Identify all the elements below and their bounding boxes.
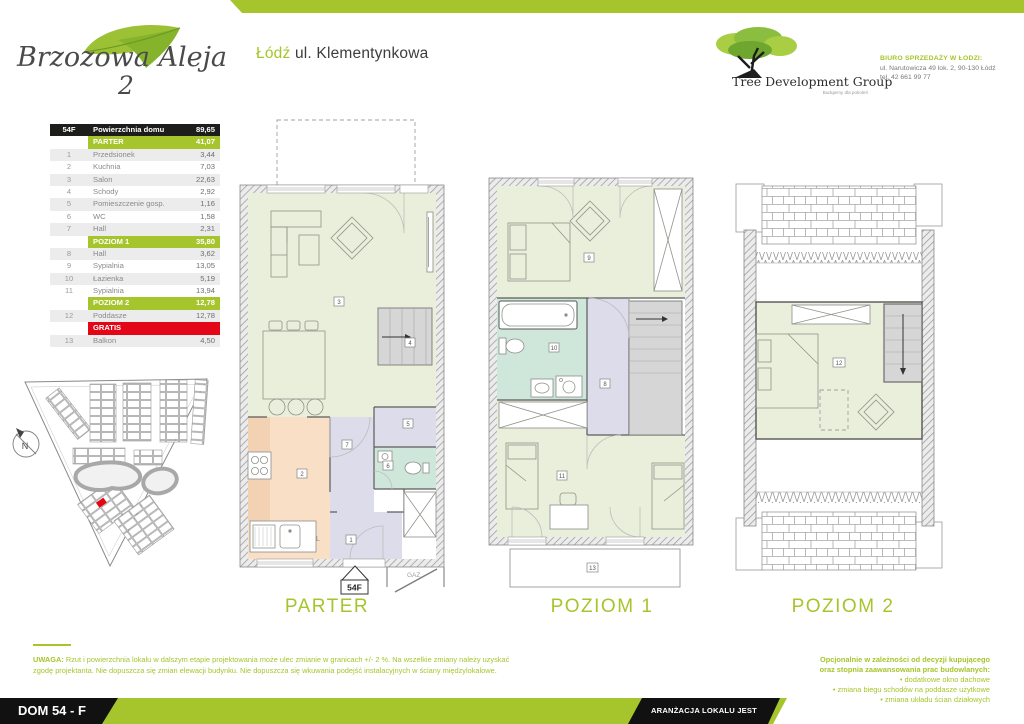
section-row-parter: PARTER41,07 (50, 136, 220, 148)
bathtub (499, 301, 577, 329)
room-area: 4,50 (182, 335, 220, 347)
roof-bottom (762, 512, 916, 570)
disclaimer-label: UWAGA: (33, 655, 64, 664)
table-row: 5 Pomieszczenie gosp.1,16 (50, 198, 220, 210)
stairs (884, 304, 922, 382)
sales-office-info: BIURO SPRZEDAŻY W ŁODZI: ul. Narutowicza… (880, 54, 1020, 83)
section-label: POZIOM 2 (88, 297, 182, 309)
table-row: 13 Balkon4,50 (50, 335, 220, 347)
roof-top (762, 186, 916, 244)
closet (404, 492, 436, 537)
kitchen-sink (250, 521, 316, 552)
stove (248, 452, 271, 479)
room-area: 12,78 (182, 310, 220, 322)
project-address: Łódź ul. Klementynkowa (256, 45, 428, 63)
developer-tagline: Budujemy dla pokoleń (823, 90, 869, 95)
table-row: 8 Hall3,62 (50, 248, 220, 260)
room-number: 1 (50, 149, 88, 161)
washing-machine (556, 376, 582, 397)
site-plan: N (10, 368, 210, 568)
washbasin (531, 379, 553, 397)
svg-text:13: 13 (589, 566, 596, 572)
section-area: 12,78 (182, 297, 220, 309)
floorplan-poziom2: 12 (734, 172, 944, 602)
svg-text:11: 11 (559, 474, 566, 480)
brochure-page: Brzozowa Aleja 2 Łódź ul. Klementynkowa … (0, 0, 1024, 724)
street-label: ul. Klementynkowa (295, 45, 429, 62)
plan-label-poziom1: POZIOM 1 (497, 596, 707, 618)
floorplan-poziom1: 9 10 8 11 13 (486, 173, 696, 593)
wardrobe (654, 189, 682, 291)
counter-label: L (316, 536, 320, 543)
developer-logo: Tree Development Group Budujemy dla poko… (696, 26, 878, 96)
stairs (629, 301, 682, 435)
room-area: 2,31 (182, 223, 220, 235)
plan-label-poziom2: POZIOM 2 (738, 596, 948, 618)
entrance-marker: 54F (341, 566, 368, 594)
room-number: 3 (50, 174, 88, 186)
room-name: Schody (88, 186, 182, 198)
office-title: BIURO SPRZEDAŻY W ŁODZI: (880, 54, 1020, 64)
room-name: Pomieszczenie gosp. (88, 198, 182, 210)
plan-label-parter: PARTER (222, 596, 432, 618)
room-area: 5,19 (182, 273, 220, 285)
option-item: • zmiana biegu schodów na poddasze użytk… (690, 685, 990, 695)
top-accent-bar (230, 0, 1024, 13)
table-row: 4 Schody2,92 (50, 186, 220, 198)
room-name: Salon (88, 174, 182, 186)
table-row: 1 Przedsionek3,44 (50, 149, 220, 161)
table-row: 2 Kuchnia7,03 (50, 161, 220, 173)
layout-disclaimer-banner: ARANŻACJA LOKALU JEST POGLĄDOWA (628, 698, 780, 724)
room-name: Poddasze (88, 310, 182, 322)
room-przedsionek (330, 512, 402, 559)
table-row: 7 Hall2,31 (50, 223, 220, 235)
option-item: • dodatkowe okno dachowe (690, 675, 990, 685)
room-name: Hall (88, 248, 182, 260)
room-name: Sypialnia (88, 260, 182, 272)
total-area: 89,65 (182, 124, 220, 136)
room-number: 2 (50, 161, 88, 173)
section-area (182, 322, 220, 334)
room-number: 8 (50, 248, 88, 260)
room-number: 6 (50, 211, 88, 223)
gas-label: GAZ (407, 572, 420, 579)
room-label: 12 (833, 358, 845, 367)
tree-icon (716, 27, 797, 78)
table-row: 11 Sypialnia13,94 (50, 285, 220, 297)
svg-text:12: 12 (836, 361, 843, 367)
room-number: 12 (50, 310, 88, 322)
options-intro: Opcjonalnie w zależności od decyzji kupu… (690, 655, 990, 665)
room-number: 13 (50, 335, 88, 347)
svg-text:10: 10 (551, 346, 558, 352)
room-name: Przedsionek (88, 149, 182, 161)
room-number: 5 (50, 198, 88, 210)
room-name: Hall (88, 223, 182, 235)
brand-name: Brzozowa Aleja (16, 42, 227, 73)
room-name: Kuchnia (88, 161, 182, 173)
room-number: 9 (50, 260, 88, 272)
gas-box: GAZ (387, 567, 444, 592)
terrace-outline (277, 120, 415, 186)
section-label: GRATIS (88, 322, 182, 334)
room-area: 22,63 (182, 174, 220, 186)
room-number: 7 (50, 223, 88, 235)
room-area: 7,03 (182, 161, 220, 173)
table-row: 6 WC1,58 (50, 211, 220, 223)
office-address: ul. Narutowicza 49 lok. 2, 90-130 Łódź (880, 64, 1020, 74)
section-row-poziom2: POZIOM 212,78 (50, 297, 220, 309)
floorplan-parter: L 1 2 3 (237, 117, 447, 595)
room-name: Sypialnia (88, 285, 182, 297)
wardrobe (792, 305, 870, 324)
section-label: PARTER (88, 136, 182, 148)
room-number: 4 (50, 186, 88, 198)
table-row: 3 Salon22,63 (50, 174, 220, 186)
office-phone: tel. 42 661 99 77 (880, 73, 1020, 83)
disclaimer-text: Rzut i powierzchnia lokalu w dalszym eta… (33, 655, 509, 675)
section-area: 41,07 (182, 136, 220, 148)
room-number: 11 (50, 285, 88, 297)
stairs (378, 308, 432, 365)
compass-north-icon: N (13, 428, 39, 457)
city-label: Łódź (256, 45, 290, 62)
table-row: 10 Łazienka5,19 (50, 273, 220, 285)
room-area: 13,94 (182, 285, 220, 297)
options-intro: oraz stopnia zaawansowania prac budowlan… (690, 665, 990, 675)
table-header-label: Powierzchnia domu (88, 124, 182, 136)
area-table: 54F Powierzchnia domu89,65 PARTER41,07 1… (50, 124, 220, 347)
toilet (499, 338, 524, 354)
room-area: 2,92 (182, 186, 220, 198)
developer-name: Tree Development Group (732, 74, 892, 89)
tv-cabinet (427, 212, 433, 272)
section-area: 35,80 (182, 236, 220, 248)
room-area: 1,16 (182, 198, 220, 210)
house-id-badge: DOM 54 - F (0, 698, 118, 724)
room-name: WC (88, 211, 182, 223)
section-label: POZIOM 1 (88, 236, 182, 248)
room-area: 3,44 (182, 149, 220, 161)
brand-logo: Brzozowa Aleja 2 (22, 22, 227, 102)
wardrobe (499, 402, 587, 428)
north-label: N (22, 441, 29, 451)
table-header-row: 54F Powierzchnia domu89,65 (50, 124, 220, 136)
table-row: 12 Poddasze12,78 (50, 310, 220, 322)
unit-tag: 54F (347, 583, 362, 593)
room-number: 10 (50, 273, 88, 285)
room-hall-8 (587, 298, 629, 435)
footer-rule (33, 644, 71, 646)
unit-code: 54F (50, 124, 88, 136)
options-note: Opcjonalnie w zależności od decyzji kupu… (690, 655, 990, 705)
section-row-gratis: GRATIS (50, 322, 220, 334)
room-name: Łazienka (88, 273, 182, 285)
disclaimer-note: UWAGA: Rzut i powierzchnia lokalu w dals… (33, 654, 513, 676)
section-row-poziom1: POZIOM 135,80 (50, 236, 220, 248)
room-area: 13,05 (182, 260, 220, 272)
room-area: 3,62 (182, 248, 220, 260)
table-row: 9 Sypialnia13,05 (50, 260, 220, 272)
room-area: 1,58 (182, 211, 220, 223)
brand-number: 2 (117, 71, 134, 100)
room-name: Balkon (88, 335, 182, 347)
